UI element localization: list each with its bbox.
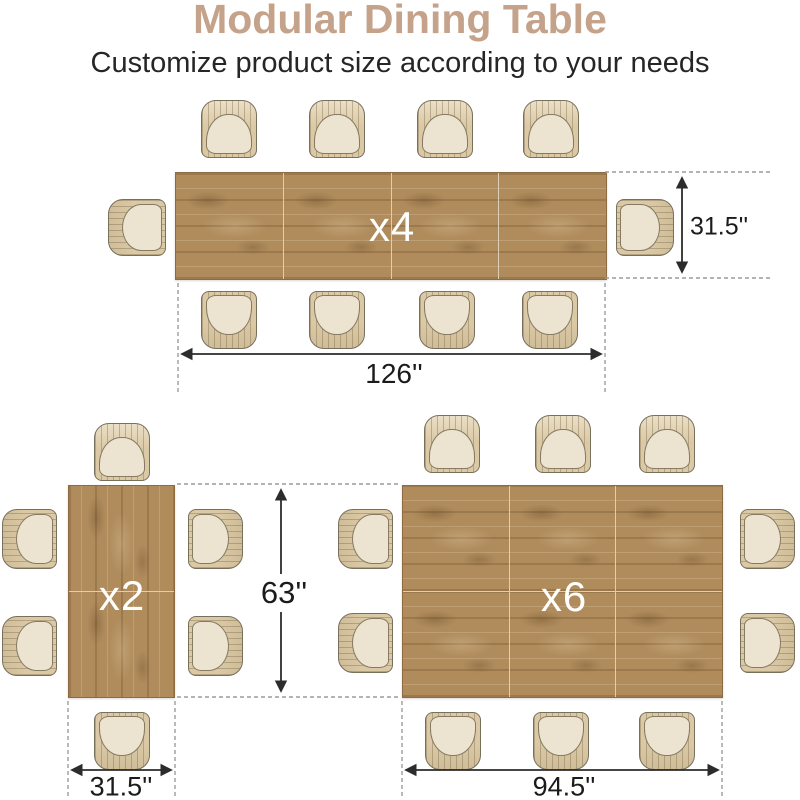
table-module [616,592,722,697]
table-module [403,592,509,697]
chair-seat [206,295,252,335]
chair [201,100,257,158]
chair [419,291,475,349]
chair-seat [314,114,360,154]
table-module [616,486,722,591]
page-subtitle: Customize product size according to your… [0,46,800,80]
table-module [403,486,509,591]
chair-seat [644,429,690,469]
chair-seat [352,618,389,668]
dimension-label-x6-width: 94.5'' [533,772,596,800]
chair [2,509,57,569]
chair-seat [538,716,584,756]
chair-seat [430,716,476,756]
chair-seat [192,514,229,564]
chair [188,616,243,676]
chair [201,291,257,349]
product-diagram: Modular Dining Table Customize product s… [0,0,800,800]
chair [535,415,591,473]
chair-seat [99,716,145,756]
chair-seat [192,621,229,671]
dimension-label-x4-length: 126'' [365,358,422,390]
chair-seat [540,429,586,469]
chair [338,613,393,673]
chair-seat [314,295,360,335]
chair-seat [16,514,53,564]
chair [108,199,166,256]
chair [425,712,481,770]
chair-seat [527,295,573,335]
chair [639,712,695,770]
chair-seat [744,514,781,564]
chair [188,509,243,569]
chair [94,423,150,481]
chair [740,613,795,673]
count-label-x4: x4 [369,203,415,251]
chair [417,100,473,158]
chair [309,100,365,158]
chair [522,291,578,349]
dimension-label-x4-depth: 31.5'' [690,213,748,242]
chair-seat [644,716,690,756]
chair [2,616,57,676]
table-module [499,173,606,279]
count-label-x2: x2 [99,572,145,620]
chair-seat [16,621,53,671]
page-title: Modular Dining Table [0,0,800,42]
chair [309,291,365,349]
chair [639,415,695,473]
dimension-label-x2-width: 31.5'' [90,772,153,800]
chair-seat [744,618,781,668]
chair-seat [424,295,470,335]
chair [616,199,674,256]
chair-seat [206,114,252,154]
chair-seat [99,437,145,477]
count-label-x6: x6 [541,573,587,621]
dimension-label-x2-height: 63'' [256,574,312,612]
chair-seat [122,204,162,251]
chair [740,509,795,569]
chair [533,712,589,770]
chair-seat [620,204,660,251]
chair-seat [429,429,475,469]
chair-seat [422,114,468,154]
chair-seat [528,114,574,154]
chair [94,712,150,770]
chair [523,100,579,158]
chair-seat [352,514,389,564]
chair [424,415,480,473]
chair [338,509,393,569]
table-module [176,173,283,279]
